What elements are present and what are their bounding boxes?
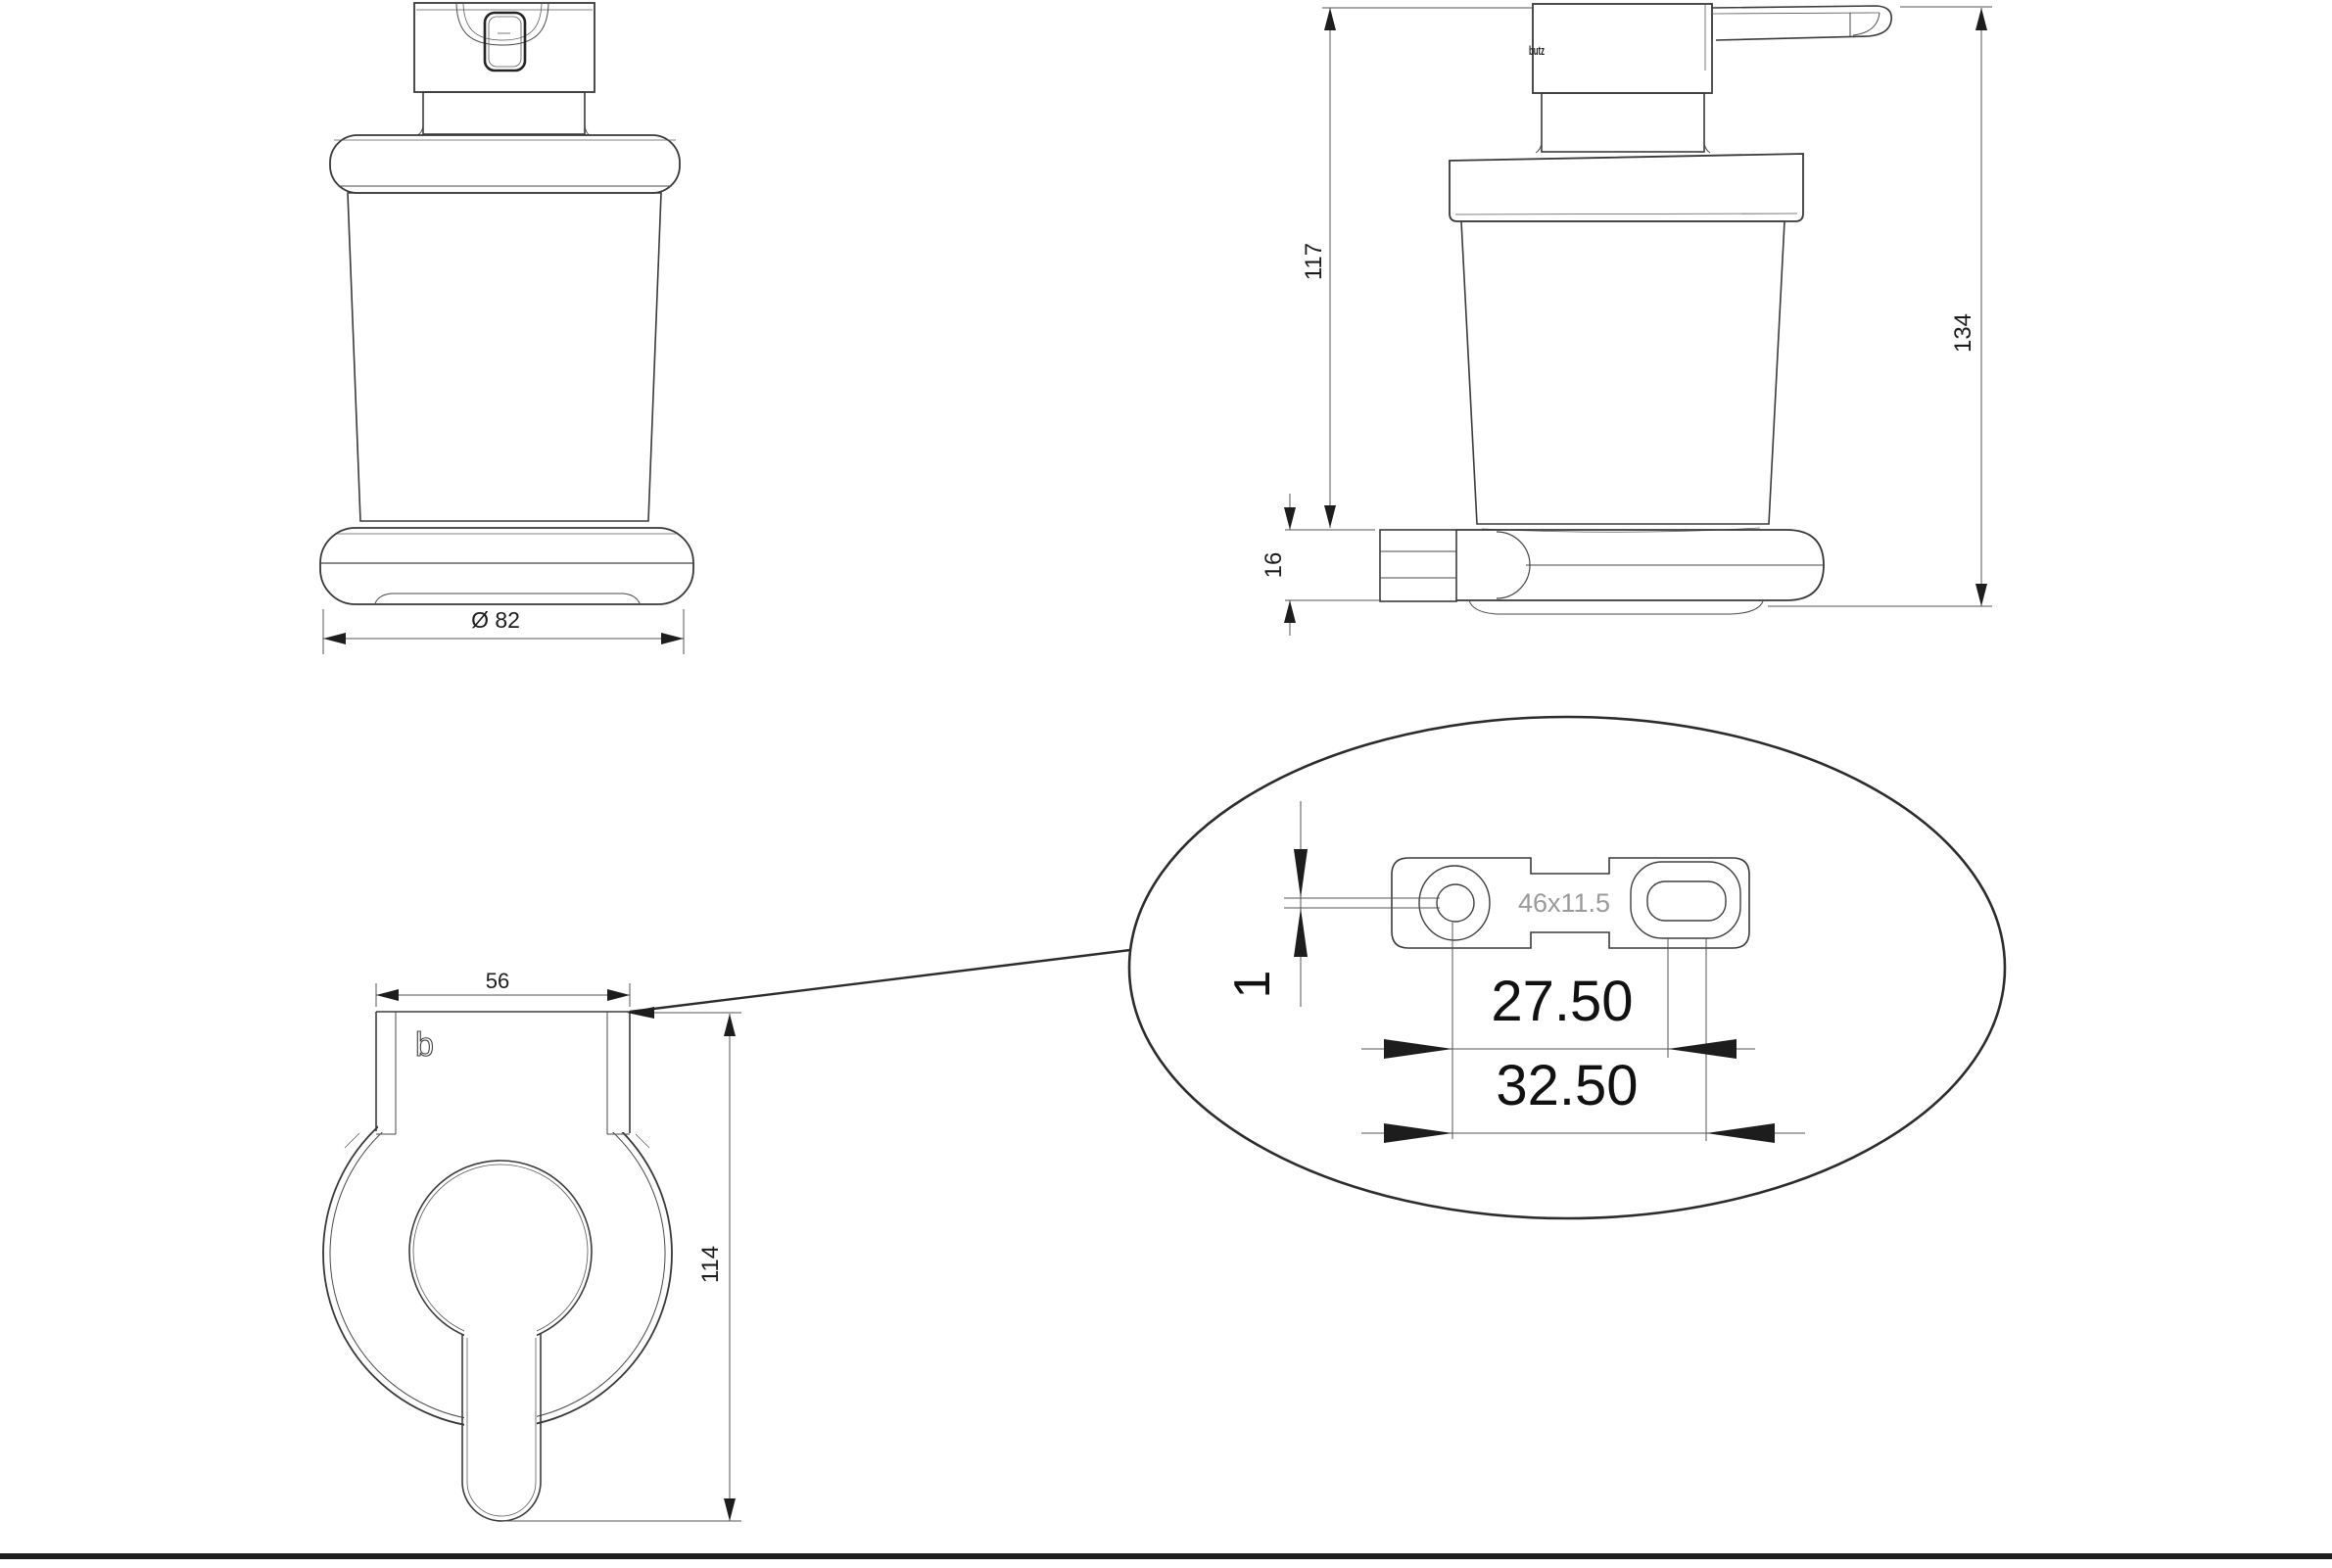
dimension-117: 117 (1301, 8, 1533, 528)
spout-lever (1712, 6, 1891, 40)
slot-inner (1647, 881, 1726, 921)
detail-offset-label: 1 (1224, 971, 1281, 999)
back-view: b 56 114 (323, 950, 1130, 1521)
arrowhead (1975, 584, 1987, 606)
collar (330, 135, 680, 193)
slot-mask (464, 1316, 537, 1346)
glass-hole-outer (409, 1161, 592, 1343)
arrowhead (1384, 1123, 1452, 1143)
dimension-1: 1 (1224, 801, 1440, 1007)
detail-leader-line (630, 950, 1130, 1012)
slot-outer-bottom (462, 1482, 541, 1521)
dimension-16: 16 (1261, 494, 1381, 636)
arrowhead (607, 989, 630, 1001)
side-bracket-height-label: 16 (1261, 552, 1287, 579)
arrowhead (724, 1014, 736, 1036)
detail-outer-pitch-label: 32.50 (1496, 1054, 1638, 1117)
arrowhead (376, 989, 399, 1001)
arrowhead (1668, 1039, 1737, 1059)
junction-tick (345, 1133, 359, 1148)
brand-logo-b: b (415, 1026, 434, 1064)
arrowhead (1706, 1123, 1775, 1143)
side-total-height-label: 134 (1950, 313, 1976, 353)
collar-side (1450, 154, 1803, 221)
pump-neck-side (1542, 93, 1704, 152)
dimension-32-50: 32.50 (1361, 1054, 1805, 1143)
arrowhead (1294, 849, 1308, 898)
slot-mask (464, 1401, 537, 1448)
base-ring (320, 528, 693, 604)
arrowhead (661, 633, 684, 644)
front-view: Ø 82 (320, 3, 693, 654)
junction-tick (636, 1134, 649, 1148)
pump-clip-inner (489, 17, 521, 67)
keyhole-outer (1419, 866, 1490, 940)
pump-head-side (1533, 4, 1712, 93)
neck-flare-left (1536, 143, 1542, 153)
holder-pocket-arc (1497, 532, 1530, 598)
brand-logo-mark: butz (1529, 43, 1545, 58)
pocket-bottom (1469, 600, 1763, 614)
arrowhead (724, 1498, 736, 1521)
arrowhead (1294, 908, 1308, 957)
pump-clip (485, 13, 525, 71)
spout-edge (1712, 13, 1880, 14)
back-height-label: 114 (697, 1246, 724, 1283)
dimension-56: 56 (376, 969, 630, 1007)
arrowhead (1975, 8, 1987, 30)
arrowhead (1284, 600, 1296, 623)
wall-bracket-side (1380, 530, 1456, 601)
spout-lip-arc (1853, 13, 1880, 35)
detail-balloon (1129, 717, 2005, 1218)
drawing-sheet: Ø 82 butz 117 (0, 0, 2332, 1568)
leader-arrowhead (627, 1007, 654, 1019)
pump-window-inner (463, 4, 542, 40)
dimension-27-50: 27.50 (1361, 970, 1755, 1059)
arrowhead (1324, 505, 1336, 528)
slot-inner-bottom (467, 1482, 536, 1516)
arrowhead (1284, 507, 1296, 530)
collar-edge (1455, 214, 1797, 214)
side-glass-height-label: 117 (1301, 243, 1327, 280)
sheet-border-bottom (0, 1553, 2332, 1559)
detail-view: 46x11.5 1 27.50 32.50 (1129, 717, 2005, 1218)
base-foot (375, 594, 640, 603)
pump-neck (423, 92, 585, 134)
dimension-134: 134 (1768, 7, 1992, 606)
arrowhead (1324, 8, 1336, 30)
slot-size-label: 46x11.5 (1518, 888, 1610, 918)
back-plate-width-label: 56 (486, 969, 509, 993)
glass-body-side (1461, 221, 1785, 524)
neck-flare-left (417, 125, 423, 135)
front-diameter-label: Ø 82 (471, 607, 520, 633)
dimension-diameter-82: Ø 82 (323, 607, 684, 654)
detail-hole-pitch-label: 27.50 (1491, 970, 1633, 1033)
arrowhead (1384, 1039, 1452, 1059)
technical-drawing-canvas: Ø 82 butz 117 (0, 0, 2332, 1568)
glass-hole-inner-edge (413, 1164, 588, 1339)
neck-flare-right (1704, 143, 1710, 153)
glass-body (348, 193, 661, 521)
arrowhead (323, 633, 346, 644)
side-view: butz 117 (1261, 4, 1992, 636)
keyhole-inner (1437, 884, 1474, 922)
holder-ring-inner-edge (330, 1086, 665, 1421)
